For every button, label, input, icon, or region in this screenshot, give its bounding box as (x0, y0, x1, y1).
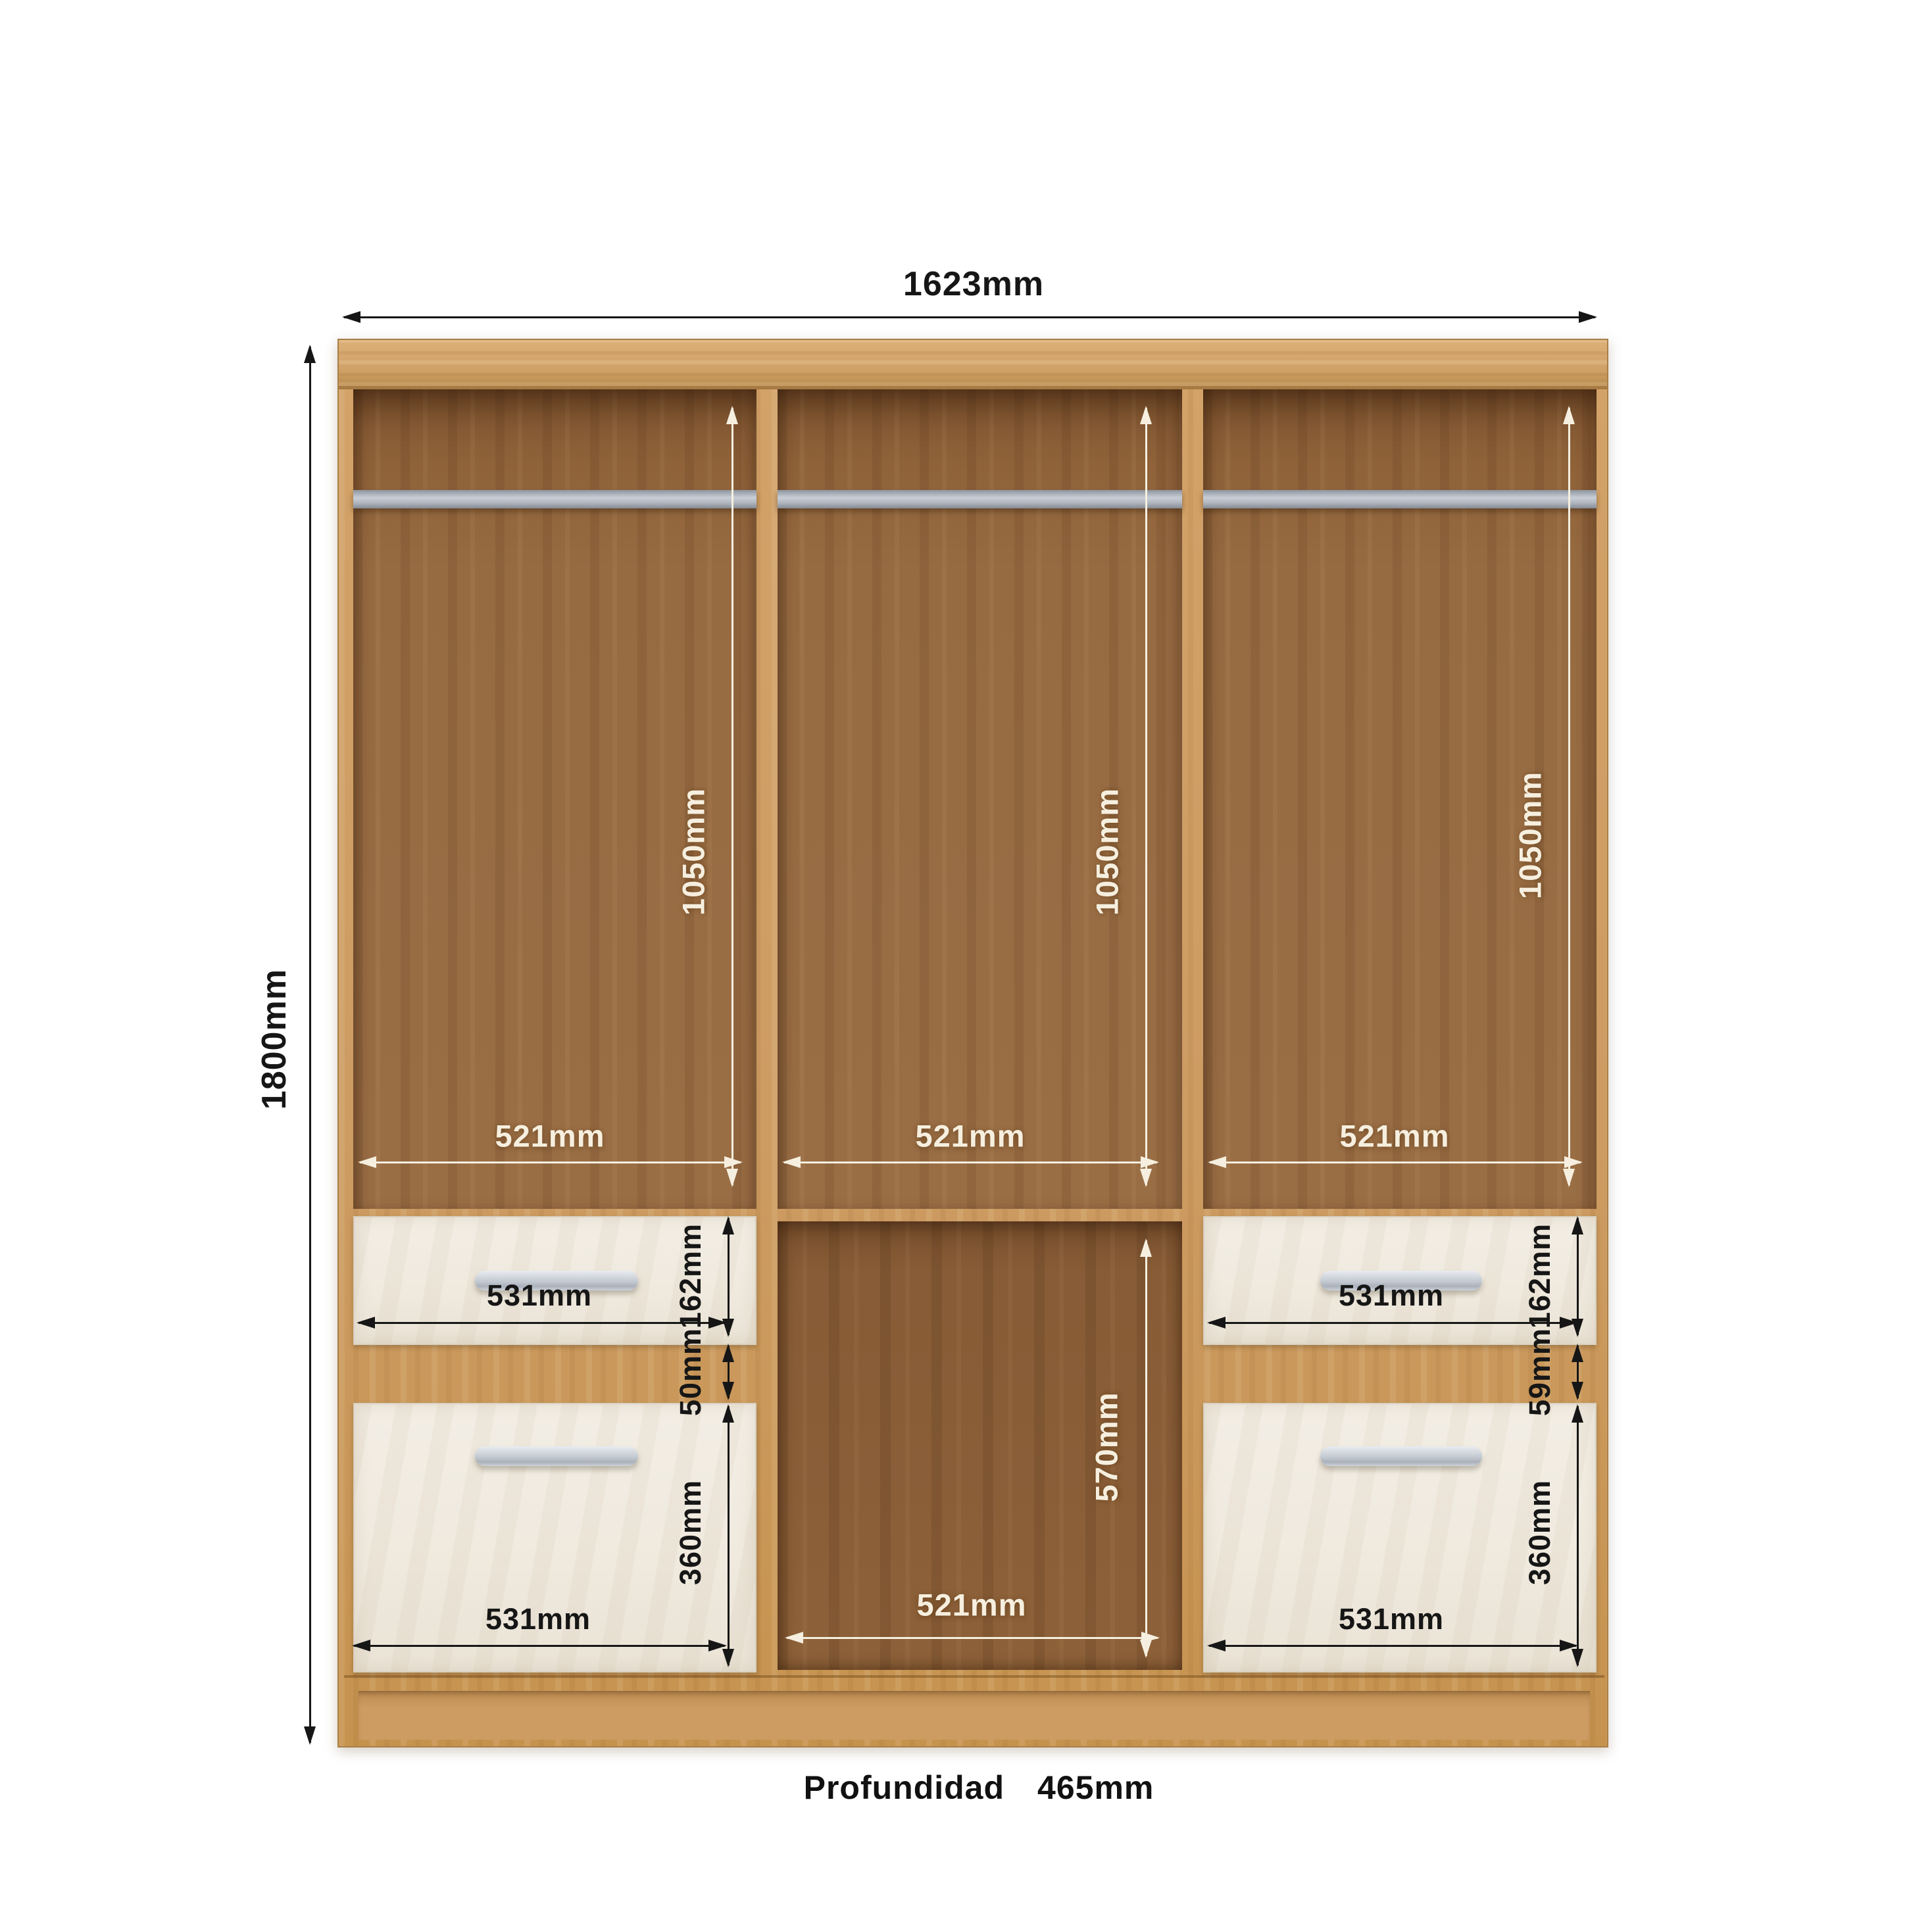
dim-label-hang-height-center: 1050mm (1089, 788, 1126, 916)
plinth-groove (344, 1675, 1604, 1678)
dim-label-bottom-drawer-width-left: 531mm (485, 1602, 591, 1636)
dim-label-bottom-drawer-width-right: 531mm (1339, 1602, 1444, 1636)
dim-label-hang-width-left: 521mm (495, 1118, 605, 1154)
dim-line-open-shelf-height (1145, 1240, 1147, 1656)
dim-line-top-drawer-height-left (728, 1218, 730, 1335)
dim-line-bottom-drawer-height-right (1577, 1406, 1579, 1665)
dim-line-bottom-drawer-height-left (728, 1406, 730, 1665)
dim-line-drawer-gap-right (1577, 1346, 1579, 1398)
dim-label-top-drawer-width-right: 531mm (1339, 1279, 1444, 1313)
dim-line-hang-width-center (784, 1161, 1157, 1163)
dim-label-hang-width-center: 521mm (916, 1118, 1026, 1154)
dim-label-hang-height-left: 1050mm (676, 788, 712, 916)
dim-label-open-shelf-width: 521mm (917, 1587, 1027, 1623)
dim-line-hang-height-left (731, 408, 733, 1185)
dim-line-drawer-gap-left (728, 1346, 730, 1398)
wardrobe-top-panel (339, 340, 1607, 389)
dim-label-bottom-drawer-height-right: 360mm (1523, 1480, 1557, 1585)
depth-note: Profundidad 465mm (804, 1769, 1154, 1807)
dim-label-bottom-drawer-height-left: 360mm (674, 1480, 708, 1585)
dim-line-open-shelf-width (787, 1637, 1158, 1639)
dimension-diagram: 1623mm 1800mm 1050mm 1050mm 1050mm 521mm… (0, 0, 1932, 1931)
dim-label-overall-width: 1623mm (903, 264, 1044, 304)
dim-line-hang-height-center (1145, 408, 1147, 1185)
hanging-rail-center (778, 490, 1182, 508)
plinth-kickboard (359, 1691, 1590, 1740)
dim-label-drawer-gap-left: 50mm (674, 1328, 708, 1416)
dim-label-open-shelf-height: 570mm (1089, 1392, 1125, 1502)
dim-line-top-drawer-height-right (1577, 1218, 1579, 1335)
dim-label-overall-height: 1800mm (255, 969, 294, 1110)
hanging-rail-left (353, 490, 756, 508)
dim-label-drawer-gap-right: 59mm (1523, 1328, 1557, 1416)
dim-label-hang-width-right: 521mm (1340, 1118, 1450, 1154)
dim-line-bottom-drawer-width-right (1209, 1645, 1576, 1647)
depth-label: Profundidad (804, 1769, 1004, 1807)
dim-line-overall-height (309, 347, 311, 1743)
dim-label-top-drawer-height-left: 162mm (674, 1223, 708, 1329)
dim-line-hang-width-left (360, 1161, 741, 1163)
drawer-handle (1320, 1446, 1482, 1466)
dim-label-top-drawer-width-left: 531mm (487, 1279, 592, 1313)
dim-line-top-drawer-width-right (1209, 1322, 1576, 1324)
hanging-rail-right (1203, 490, 1597, 508)
dim-label-hang-height-right: 1050mm (1512, 771, 1548, 899)
dim-line-top-drawer-width-left (359, 1322, 725, 1324)
wardrobe-body (337, 339, 1608, 1748)
drawer-handle (475, 1446, 638, 1466)
dim-line-bottom-drawer-width-left (354, 1645, 725, 1647)
dim-line-hang-width-right (1210, 1161, 1581, 1163)
dim-line-hang-height-right (1568, 408, 1570, 1185)
depth-value: 465mm (1037, 1769, 1154, 1807)
dim-line-overall-width (344, 316, 1595, 318)
dim-label-top-drawer-height-right: 162mm (1523, 1223, 1557, 1329)
